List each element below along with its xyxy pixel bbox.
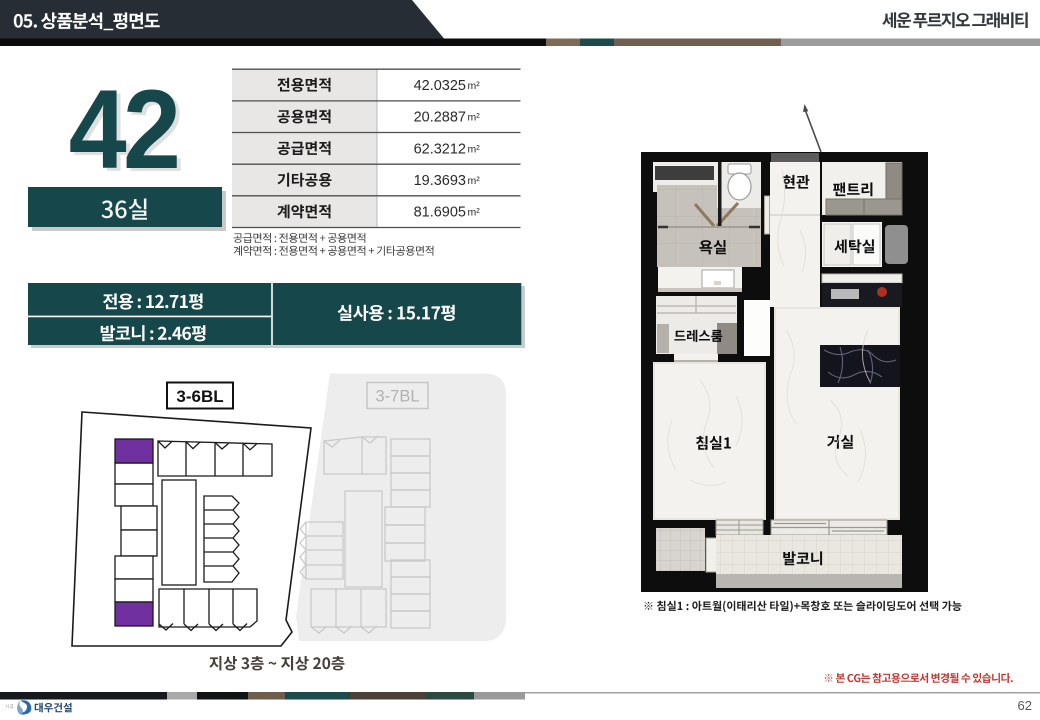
svg-text:81.6905: 81.6905 <box>414 205 466 221</box>
svg-text:19.3693: 19.3693 <box>414 173 466 189</box>
svg-text:m²: m² <box>468 143 481 155</box>
svg-text:62: 62 <box>1018 698 1032 713</box>
svg-text:3-7BL: 3-7BL <box>375 388 419 406</box>
svg-text:42.0325: 42.0325 <box>414 78 466 94</box>
svg-text:m²: m² <box>468 80 481 92</box>
svg-text:m²: m² <box>468 207 481 219</box>
svg-text:42: 42 <box>69 67 177 192</box>
svg-text:62.3212: 62.3212 <box>414 141 466 157</box>
svg-text:20.2887: 20.2887 <box>414 110 466 126</box>
svg-text:m²: m² <box>468 112 481 124</box>
svg-text:m²: m² <box>468 175 481 187</box>
svg-text:3-6BL: 3-6BL <box>176 387 223 406</box>
